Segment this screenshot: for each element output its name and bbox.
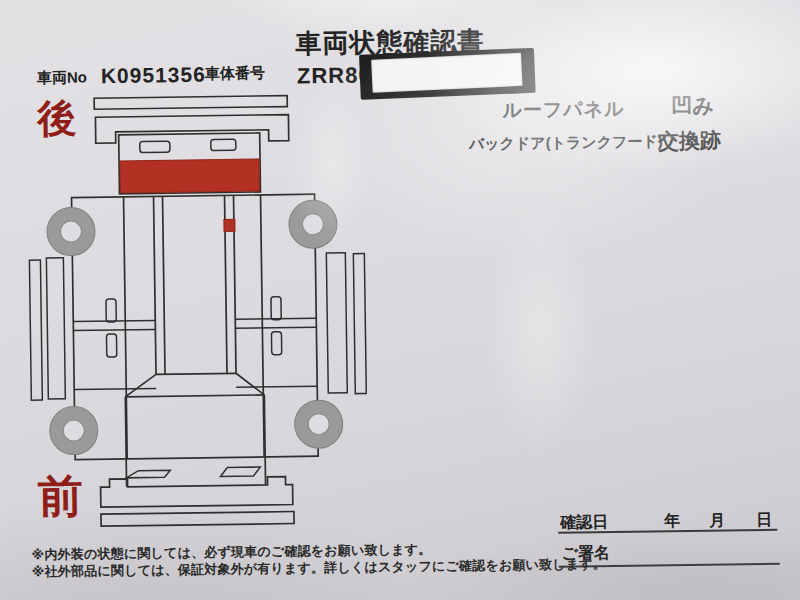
body-number-label: 車体番号 <box>205 64 265 84</box>
back-door-panel <box>119 133 261 194</box>
damage-part-back-door: バックドア(トランクフード) <box>469 132 663 154</box>
car-top-view-diagram <box>22 90 388 535</box>
damage-marker-roof-spot <box>224 219 235 231</box>
headlight <box>220 467 260 477</box>
door-handle <box>106 334 116 357</box>
door-handle <box>271 332 281 355</box>
redaction-marker <box>359 48 536 100</box>
damage-condition-dent: 凹み <box>671 92 714 121</box>
headlight <box>126 470 170 478</box>
door-handle <box>271 297 281 320</box>
vehicle-condition-sheet-photo: 車両状態確認書 車両No K0951356 車体番号 ZRR80- ルーフパネル… <box>0 0 800 600</box>
damage-part-roof-panel: ルーフパネル <box>502 96 625 124</box>
damage-marker-back-door <box>120 159 259 193</box>
door-handle <box>106 299 116 322</box>
vehicle-no-label: 車両No <box>37 68 87 88</box>
vehicle-no-value: K0951356 <box>101 63 206 88</box>
redaction-sticker <box>371 53 522 93</box>
body-outline <box>72 194 319 487</box>
paper-sheet: 車両状態確認書 車両No K0951356 車体番号 ZRR80- ルーフパネル… <box>0 0 800 600</box>
damage-condition-replaced: 交換跡 <box>658 127 721 156</box>
